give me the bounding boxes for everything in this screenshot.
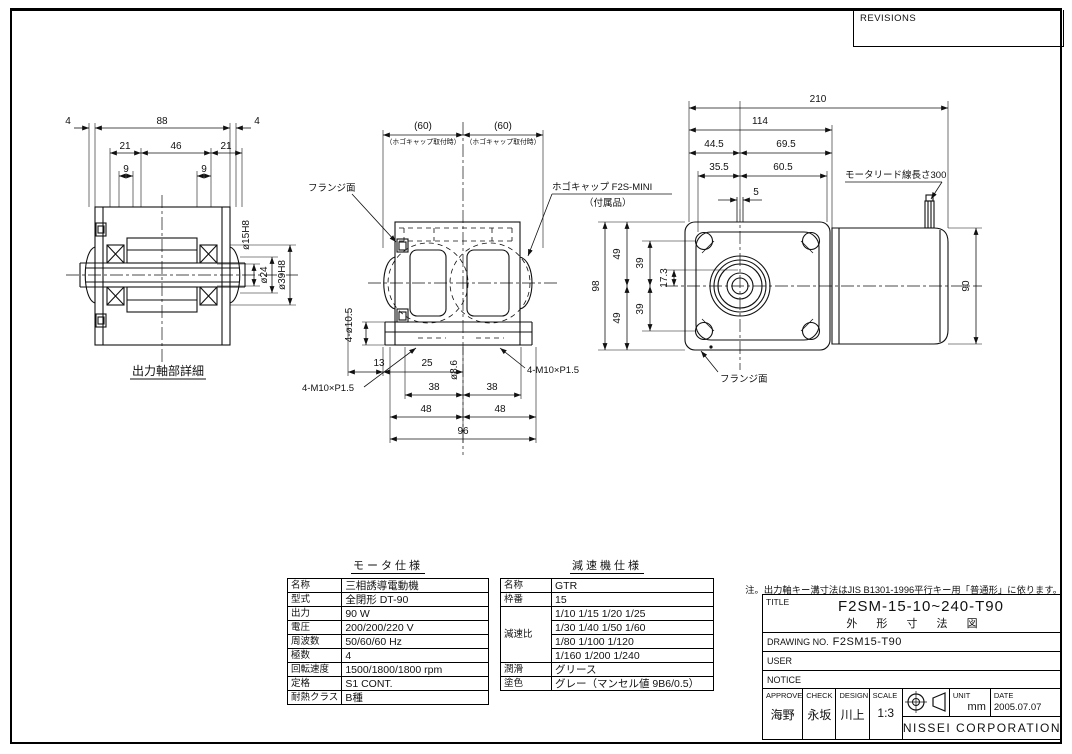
dim-114: 114: [752, 116, 768, 127]
dim-17-3: 17.3: [659, 268, 670, 288]
drawing-no-value: F2SM15-T90: [833, 636, 902, 648]
user-row: USER: [763, 652, 1061, 671]
dim-21-right: 21: [220, 141, 232, 152]
gearhead-outline: [384, 222, 532, 345]
bolt-callout-left: 4-M10×P1.5: [302, 383, 354, 394]
motor-lead-length-label: モータリード線長さ300: [845, 169, 946, 181]
revisions-label: REVISIONS: [854, 10, 1063, 24]
check-cell: CHECK 永坂: [803, 689, 836, 739]
dim-38-left: 38: [428, 382, 440, 393]
revisions-box: REVISIONS: [853, 10, 1064, 47]
dim-48-right: 48: [494, 404, 506, 415]
date-cell: DATE 2005.07.07: [991, 689, 1061, 716]
drawing-title: F2SM-15-10~240-T90: [763, 595, 1061, 615]
bolt-callout-right: 4-M10×P1.5: [527, 365, 579, 376]
dim-4-dia10-5: 4-ø10.5: [344, 307, 355, 342]
dim-39-bottom: 39: [635, 303, 646, 315]
dim-13: 13: [373, 358, 385, 369]
table-row: 塗色グレー（マンセル値 9B6/0.5）: [501, 677, 714, 691]
dim-dia15H8: ø15H8: [241, 220, 252, 250]
table-row: 耐熱クラスB種: [288, 691, 489, 705]
flange-face-label: フランジ面: [308, 183, 356, 194]
dimension-lines: [74, 128, 290, 305]
flange-face-label: フランジ面: [720, 374, 768, 385]
table-row: 枠番15: [501, 593, 714, 607]
dim-dia8-6: ø8.6: [449, 360, 460, 380]
dim-38-right: 38: [486, 382, 498, 393]
dim-69-5: 69.5: [776, 139, 796, 150]
dim-90: 90: [961, 280, 972, 292]
dim-49-bottom: 49: [612, 312, 623, 324]
signature-row: APPROVE 海野 CHECK 永坂 DESIGN 川上 SCALE 1:3: [763, 689, 1061, 739]
unit-cell: UNIT mm: [950, 689, 991, 716]
shaft-section-outline: [80, 207, 245, 345]
centerlines: [665, 209, 982, 370]
drawing-no-row: DRAWING NO. F2SM15-T90: [763, 633, 1061, 652]
reducer-spec-table: 減速機仕様 名称GTR 枠番15 減速比1/10 1/15 1/20 1/25 …: [500, 556, 714, 691]
dim-210: 210: [810, 94, 827, 105]
gearmotor-side-view: 210 114 44.5 69.5 35.5 60.5 5 98 49 49 3…: [590, 85, 1062, 395]
third-angle-projection-icon: [903, 689, 950, 716]
table-row: 出力90 W: [288, 607, 489, 621]
table-row: 周波数50/60/60 Hz: [288, 635, 489, 649]
design-cell: DESIGN 川上: [836, 689, 869, 739]
scale-cell: SCALE 1:3: [870, 689, 903, 739]
dim-35-5: 35.5: [709, 162, 729, 173]
table-row: 名称GTR: [501, 579, 714, 593]
reducer-spec-title: 減速機仕様: [500, 556, 714, 574]
output-shaft-detail-view: 4 88 4 21 46 21 9 9 ø15H8 ø24 ø39H8 出力軸部…: [30, 95, 320, 395]
dim-dia24: ø24: [259, 266, 270, 284]
flange-and-motor-outline: [685, 195, 948, 350]
dim-4-left: 4: [65, 116, 71, 127]
dim-39-top: 39: [635, 257, 646, 269]
dim-dia39H8: ø39H8: [277, 260, 288, 290]
shaft-detail-caption: 出力軸部詳細: [132, 363, 204, 378]
dim-9-right: 9: [201, 164, 207, 175]
dim-21-left: 21: [119, 141, 131, 152]
notice-label: NOTICE: [767, 675, 801, 685]
dim-98: 98: [591, 280, 602, 292]
dim-44-5: 44.5: [704, 139, 724, 150]
dim-60-right: (60): [494, 121, 512, 132]
table-row: 電圧200/200/220 V: [288, 621, 489, 635]
dim-60-left: (60): [414, 121, 432, 132]
dim-88: 88: [156, 116, 168, 127]
flange-face-dot: [709, 345, 712, 348]
company-name: NISSEI CORPORATION: [903, 717, 1061, 739]
drawing-no-label: DRAWING NO.: [767, 637, 829, 647]
dim-49-top: 49: [612, 248, 623, 260]
dim-4-right: 4: [254, 116, 260, 127]
motor-spec-title: モータ仕様: [287, 556, 489, 574]
notice-row: NOTICE: [763, 671, 1061, 689]
user-label: USER: [767, 656, 792, 666]
dim-5: 5: [753, 187, 759, 198]
table-row: 回転速度1500/1800/1800 rpm: [288, 663, 489, 677]
title-block: TITLE F2SM-15-10~240-T90 外 形 寸 法 図 DRAWI…: [762, 594, 1062, 740]
table-row: 潤滑グリース: [501, 663, 714, 677]
approve-cell: APPROVE 海野: [763, 689, 803, 739]
table-row: 定格S1 CONT.: [288, 677, 489, 691]
drawing-subtitle: 外 形 寸 法 図: [763, 615, 1061, 631]
title-label: TITLE: [766, 597, 789, 607]
table-row: 型式全閉形 DT-90: [288, 593, 489, 607]
table-row: 極数4: [288, 649, 489, 663]
table-row: 減速比1/10 1/15 1/20 1/25: [501, 607, 714, 621]
title-row: TITLE F2SM-15-10~240-T90 外 形 寸 法 図: [763, 595, 1061, 633]
drawing-sheet: REVISIONS: [0, 0, 1072, 754]
dim-48-left: 48: [420, 404, 432, 415]
cap-note-left: （ホゴキャップ取付時）: [386, 137, 461, 146]
dim-60-5: 60.5: [773, 162, 793, 173]
dim-46: 46: [170, 141, 182, 152]
title-block-right: UNIT mm DATE 2005.07.07 NISSEI CORPORATI…: [903, 689, 1061, 739]
motor-spec-table: モータ仕様 名称三相誘導電動機 型式全閉形 DT-90 出力90 W 電圧200…: [287, 556, 489, 705]
dim-9-left: 9: [123, 164, 129, 175]
cap-note-right: （ホゴキャップ取付時）: [466, 137, 541, 146]
dim-25: 25: [421, 358, 433, 369]
table-row: 名称三相誘導電動機: [288, 579, 489, 593]
dim-96: 96: [457, 426, 469, 437]
